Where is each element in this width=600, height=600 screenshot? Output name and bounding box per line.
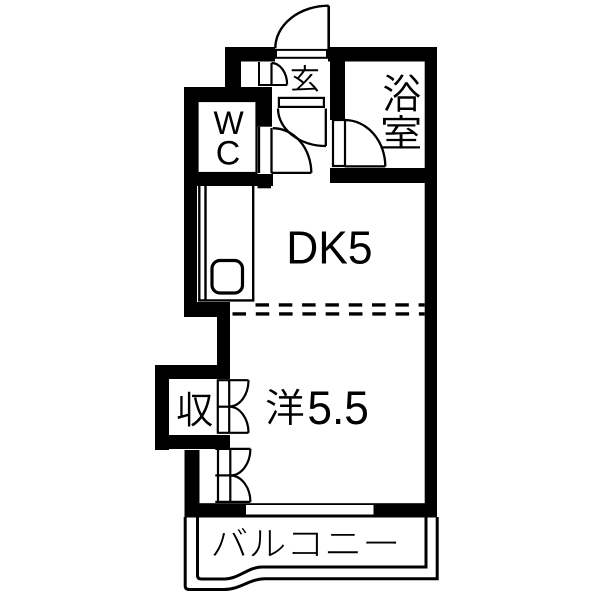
svg-text:DK5: DK5	[286, 221, 372, 273]
svg-text:5.5: 5.5	[307, 381, 369, 434]
svg-text:C: C	[216, 135, 241, 173]
